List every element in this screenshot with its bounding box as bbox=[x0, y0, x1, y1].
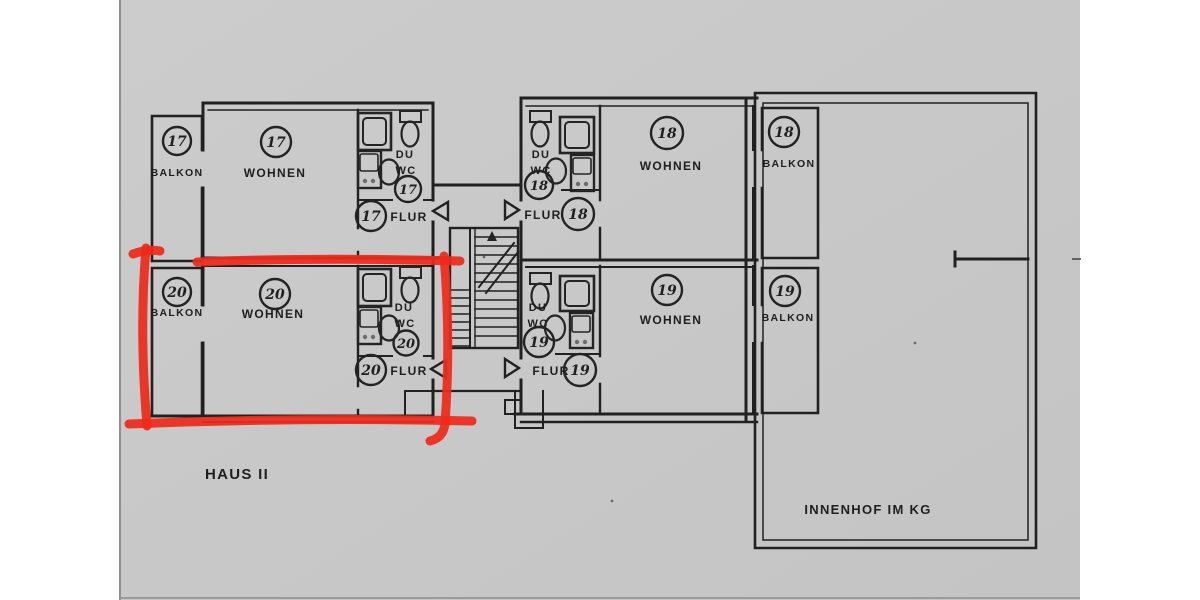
scan-speck bbox=[914, 342, 917, 345]
wohnen-label-20: WOHNEN bbox=[242, 307, 304, 321]
wohnen-number-20: 20 bbox=[264, 287, 285, 303]
wohnen-label-18: WOHNEN bbox=[640, 159, 702, 173]
balkon-label-20: BALKON bbox=[151, 307, 204, 319]
wc-label-20: WC bbox=[395, 318, 416, 330]
red-bottom-stroke bbox=[129, 420, 472, 424]
wc-number-17: 17 bbox=[399, 183, 417, 198]
du-label-17: DU bbox=[396, 149, 415, 161]
wohnen-number-18: 18 bbox=[657, 126, 677, 142]
flur-label-20: FLUR bbox=[390, 364, 427, 378]
wohnen-number-17: 17 bbox=[266, 135, 286, 151]
balkon-number-19: 19 bbox=[775, 284, 795, 300]
balkon-label-17: BALKON bbox=[151, 167, 204, 179]
flur-number-20: 20 bbox=[360, 363, 381, 379]
red-left-stroke bbox=[143, 248, 147, 426]
flur-number-17: 17 bbox=[361, 209, 381, 225]
wc-number-20: 20 bbox=[396, 337, 415, 352]
balkon-number-17: 17 bbox=[167, 134, 187, 150]
floor-plan-canvas: 17 BALKON 17 WOHNEN DU WC 17 17 FLUR bbox=[0, 0, 1200, 600]
du-label-19: DU bbox=[529, 302, 548, 314]
wohnen-label-19: WOHNEN bbox=[640, 313, 702, 327]
balkon-label-18: BALKON bbox=[763, 158, 816, 170]
flur-label-18: FLUR bbox=[524, 208, 561, 222]
scan-speck bbox=[611, 500, 614, 503]
wc-number-18: 18 bbox=[530, 179, 548, 194]
flur-label-17: FLUR bbox=[390, 210, 427, 224]
flur-number-18: 18 bbox=[568, 207, 588, 223]
wohnen-label-17: WOHNEN bbox=[244, 166, 306, 180]
scanned-floor-plan: 17 BALKON 17 WOHNEN DU WC 17 17 FLUR bbox=[0, 0, 1200, 600]
flur-number-19: 19 bbox=[570, 363, 590, 379]
courtyard-label: INNENHOF IM KG bbox=[804, 502, 931, 517]
du-label-20: DU bbox=[395, 302, 414, 314]
wc-number-19: 19 bbox=[529, 335, 549, 351]
balkon-label-19: BALKON bbox=[762, 312, 815, 324]
balkon-number-18: 18 bbox=[774, 125, 794, 141]
balkon-number-20: 20 bbox=[166, 285, 187, 301]
red-top-stroke bbox=[197, 259, 460, 262]
wohnen-number-19: 19 bbox=[657, 283, 677, 299]
du-label-18: DU bbox=[532, 149, 551, 161]
haus-title: HAUS II bbox=[205, 466, 269, 483]
scan-speck bbox=[483, 256, 486, 259]
